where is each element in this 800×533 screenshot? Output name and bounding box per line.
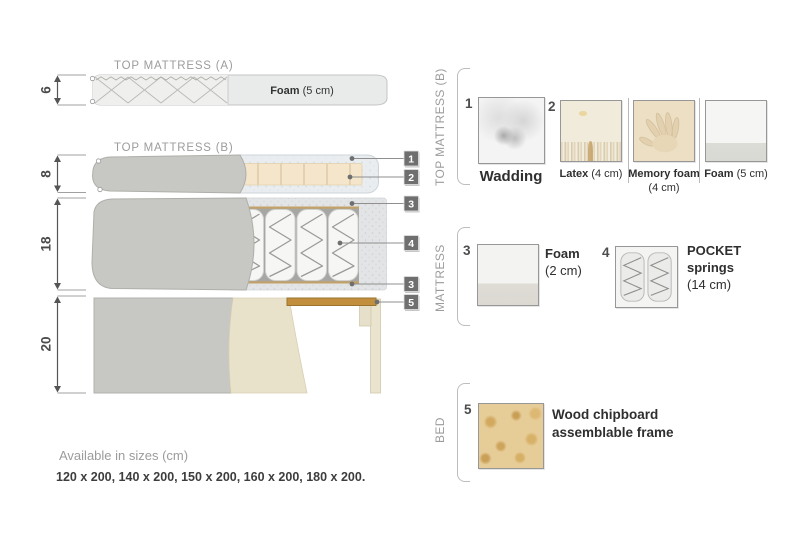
top-mattress-b-cover	[93, 155, 247, 193]
wood-slat	[287, 298, 376, 306]
bracket-bed	[457, 383, 470, 482]
wood-chipboard-label: Wood chipboard assemblable frame	[552, 406, 684, 441]
tag-3-top: 3	[404, 196, 420, 213]
tag-5: 5	[404, 295, 420, 312]
tag-4: 4	[404, 236, 420, 253]
memory-foam-label: Memory foam (4 cm)	[626, 168, 702, 196]
tag-3-bottom: 3	[404, 277, 420, 294]
dim-20-label: 20	[39, 336, 54, 351]
bed-skirt-fabric	[229, 298, 307, 393]
top-mattress-b: TOP MATTRESS (B)	[93, 142, 379, 193]
legend-num-4: 4	[602, 245, 610, 260]
legend-num-2: 2	[548, 99, 556, 114]
svg-text:3: 3	[408, 279, 414, 291]
latex-spot	[579, 111, 587, 116]
dimension-8: 8	[39, 155, 87, 193]
svg-text:1: 1	[408, 153, 414, 165]
wadding-swatch	[478, 97, 545, 164]
pocket-springs-label: POCKET springs(14 cm)	[687, 243, 769, 294]
dimension-6: 6	[39, 75, 87, 105]
mattress-cover	[92, 198, 254, 290]
dimension-18: 18	[39, 198, 87, 290]
dim-6-label: 6	[39, 86, 54, 94]
top-mattress-a: TOP MATTRESS (A) Foam (5 cm)	[90, 60, 387, 105]
available-sizes-list: 120 x 200, 140 x 200, 150 x 200, 160 x 2…	[56, 470, 365, 484]
top-mattress-b-title: TOP MATTRESS (B)	[114, 142, 234, 154]
pocket-springs-swatch	[615, 246, 678, 308]
dimension-20: 20	[39, 296, 87, 393]
bed-leg	[371, 299, 381, 393]
legend-heading-mattress: MATTRESS	[433, 230, 449, 326]
mattress-section	[92, 198, 387, 290]
latex-notch	[588, 141, 593, 161]
foam-5cm-label: Foam (5 cm)	[696, 168, 776, 182]
wood-chipboard-swatch	[478, 403, 544, 469]
latex-layer	[236, 164, 362, 186]
bed-corner-block	[360, 305, 372, 326]
dim-8-label: 8	[39, 170, 54, 178]
legend-heading-bed: BED	[433, 406, 449, 454]
foam-5cm-swatch	[705, 100, 767, 162]
memory-foam-handprint	[634, 101, 694, 161]
bracket-mattress	[457, 227, 470, 326]
top-mattress-a-title: TOP MATTRESS (A)	[114, 60, 234, 72]
svg-text:5: 5	[408, 297, 414, 309]
bed-section	[94, 298, 381, 393]
top-mattress-a-quilt	[93, 75, 228, 105]
legend-num-3: 3	[463, 243, 471, 258]
latex-label: Latex (4 cm)	[546, 168, 636, 182]
memory-foam-swatch	[633, 100, 695, 162]
svg-text:2: 2	[408, 172, 414, 184]
legend-num-5: 5	[464, 402, 472, 417]
legend-heading-top-mattress-b: TOP MATTRESS (B)	[433, 68, 449, 186]
latex-swatch	[560, 100, 622, 162]
tag-1: 1	[404, 151, 420, 168]
available-sizes-title: Available in sizes (cm)	[59, 448, 188, 463]
mattress-infographic: 6 TOP MATTRESS (A) Foam (5 cm) 8	[0, 0, 800, 533]
bed-cover	[94, 298, 233, 393]
foam-2cm-swatch	[477, 244, 539, 306]
svg-text:4: 4	[408, 238, 414, 250]
svg-text:3: 3	[408, 198, 414, 210]
pocket-springs-illustration	[616, 247, 677, 307]
foam-5cm-diagram-label: Foam (5 cm)	[270, 85, 334, 97]
dim-18-label: 18	[39, 236, 54, 252]
tag-2: 2	[404, 170, 420, 187]
legend-num-1: 1	[465, 96, 473, 111]
